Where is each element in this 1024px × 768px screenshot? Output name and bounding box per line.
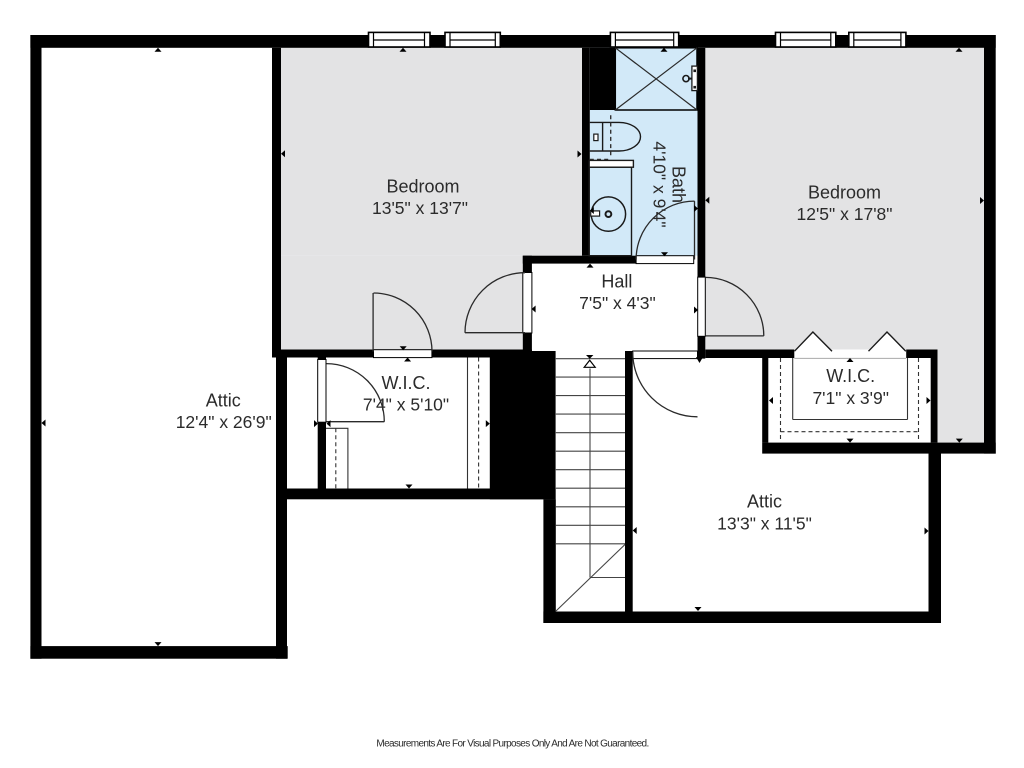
svg-text:12'4" x 26'9": 12'4" x 26'9" <box>176 412 272 432</box>
svg-text:13'3" x 11'5": 13'3" x 11'5" <box>717 514 812 534</box>
svg-text:4'10" x 9'4": 4'10" x 9'4" <box>650 141 670 227</box>
svg-text:12'5" x 17'8": 12'5" x 17'8" <box>797 204 893 224</box>
svg-text:Bedroom: Bedroom <box>808 183 881 203</box>
svg-text:13'5" x 13'7": 13'5" x 13'7" <box>372 198 468 218</box>
svg-text:7'1" x 3'9": 7'1" x 3'9" <box>812 388 889 408</box>
svg-text:Hall: Hall <box>601 272 632 292</box>
svg-text:Bedroom: Bedroom <box>386 177 459 197</box>
svg-text:7'4" x 5'10": 7'4" x 5'10" <box>363 395 449 415</box>
svg-text:Attic: Attic <box>747 492 782 512</box>
svg-text:7'5" x 4'3": 7'5" x 4'3" <box>579 293 656 313</box>
svg-text:W.I.C.: W.I.C. <box>382 373 431 393</box>
svg-text:W.I.C.: W.I.C. <box>826 366 875 386</box>
svg-text:Attic: Attic <box>206 391 241 411</box>
svg-text:Measurements Are For Visual Pu: Measurements Are For Visual Purposes Onl… <box>376 738 648 749</box>
svg-text:Bath: Bath <box>669 166 689 203</box>
